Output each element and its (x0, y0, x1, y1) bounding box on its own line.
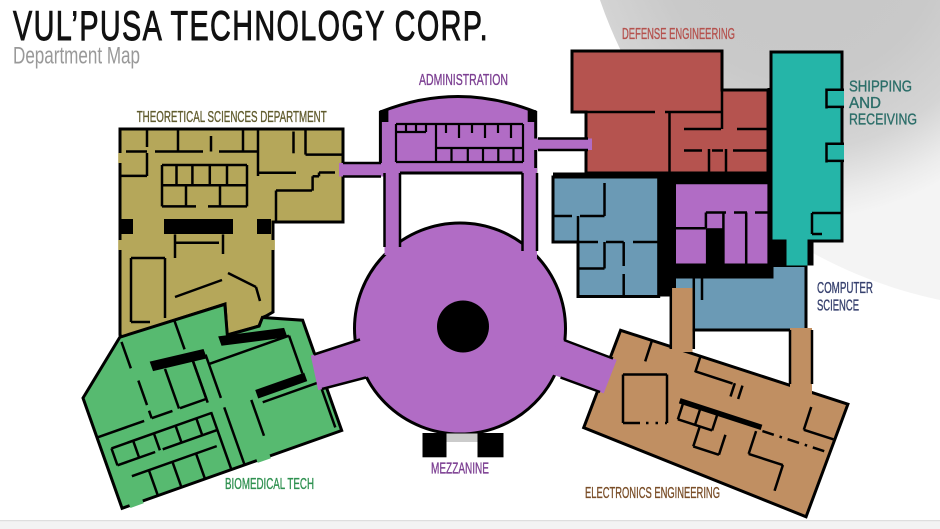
svg-text:AND: AND (849, 95, 881, 112)
svg-text:MEZZANINE: MEZZANINE (431, 461, 489, 478)
svg-text:DEFENSE ENGINEERING: DEFENSE ENGINEERING (622, 26, 735, 43)
svg-text:SHIPPING: SHIPPING (849, 79, 912, 96)
svg-text:ELECTRONICS ENGINEERING: ELECTRONICS ENGINEERING (585, 485, 720, 502)
svg-text:THEORETICAL SCIENCES DEPARTMEN: THEORETICAL SCIENCES DEPARTMENT (137, 109, 327, 126)
svg-text:BIOMEDICAL TECH: BIOMEDICAL TECH (225, 476, 314, 493)
svg-text:RECEIVING: RECEIVING (849, 112, 917, 129)
svg-text:COMPUTER: COMPUTER (817, 280, 873, 297)
svg-text:SCIENCE: SCIENCE (817, 298, 859, 315)
svg-text:ADMINISTRATION: ADMINISTRATION (419, 72, 508, 89)
svg-text:Department Map: Department Map (13, 43, 140, 70)
